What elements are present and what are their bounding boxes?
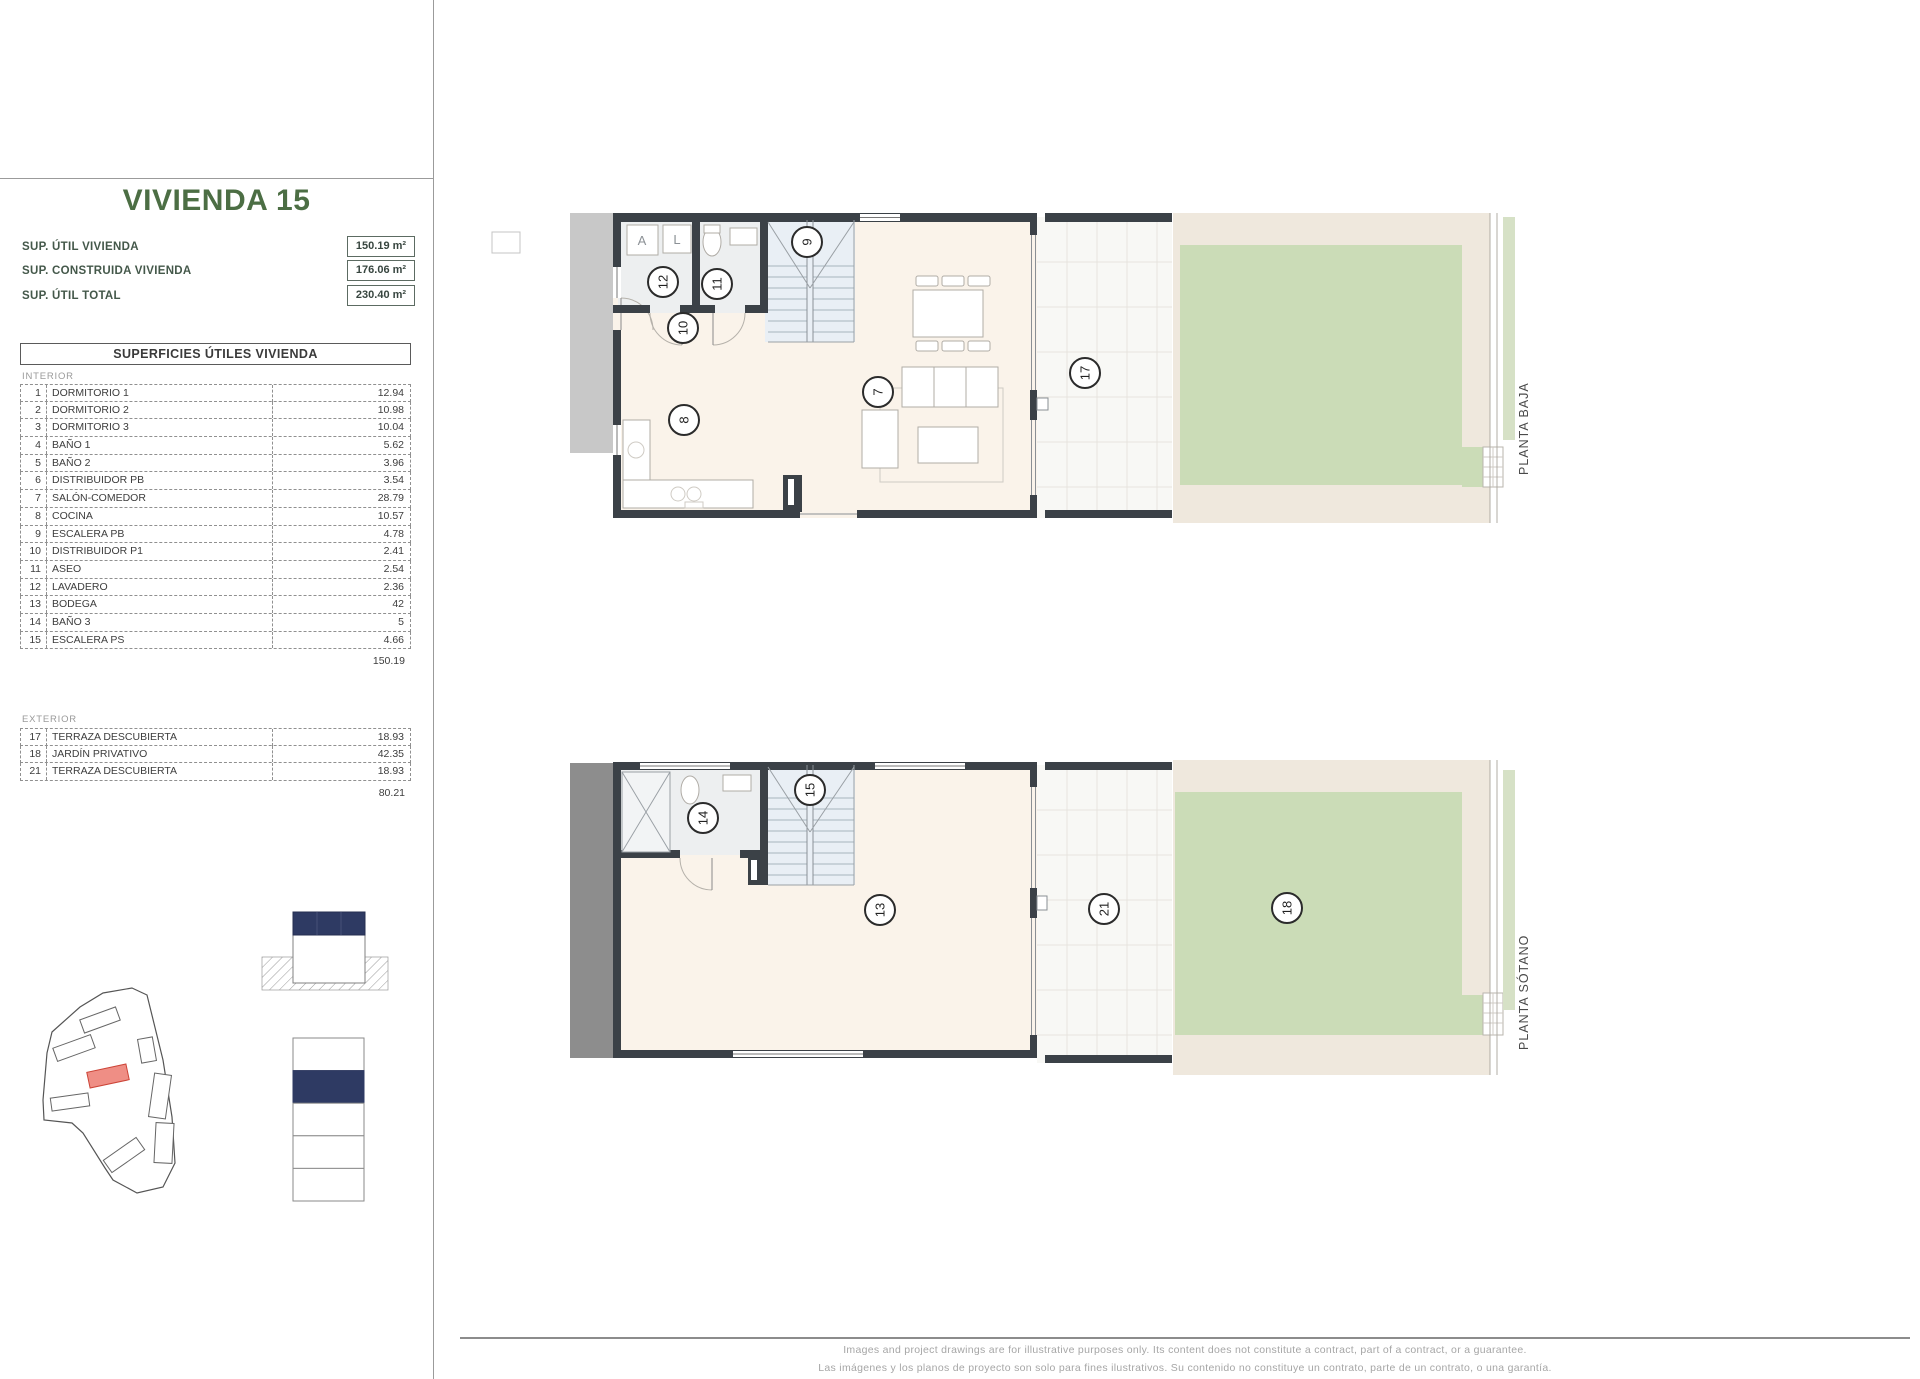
interior-total: 150.19 [20,655,411,667]
row-value: 18.93 [273,763,410,780]
wall-top [613,213,1037,222]
interior-section-label: INTERIOR [22,371,74,382]
floor-level-key [292,1037,366,1202]
row-name: DORMITORIO 1 [47,385,273,402]
level-cell [293,1136,364,1169]
stat-value-util-total: 230.40 m² [347,285,415,306]
row-value: 5.62 [273,437,410,454]
wall-left [613,455,621,518]
table-row: 21TERRAZA DESCUBIERTA18.93 [20,763,411,781]
terrace-wall-bottom [1045,510,1172,518]
table-row: 7SALÓN-COMEDOR28.79 [20,490,411,508]
site-plan-key [25,975,240,1210]
stat-label-util-total: SUP. ÚTIL TOTAL [22,290,322,302]
row-num: 12 [21,579,47,596]
row-num: 10 [21,543,47,560]
room-tag-kitchen: 8 [669,405,699,435]
room-tag-stairs: 15 [795,775,825,805]
row-value: 28.79 [273,490,410,507]
row-name: BAÑO 1 [47,437,273,454]
row-num: 13 [21,596,47,613]
svg-text:15: 15 [803,783,818,797]
row-num: 9 [21,526,47,543]
garden [1175,792,1462,1035]
room-tag-cellar: 13 [865,895,895,925]
footer-disclaimer-es: Las imágenes y los planos de proyecto so… [460,1362,1910,1374]
stat-label-util-vivienda: SUP. ÚTIL VIVIENDA [22,241,322,253]
stat-value-util-vivienda: 150.19 m² [347,236,415,257]
ground-level-box [293,912,365,935]
svg-text:13: 13 [873,903,888,917]
vanity [723,775,751,791]
row-value: 5 [273,614,410,631]
row-value: 2.36 [273,579,410,596]
stat-label-construida: SUP. CONSTRUIDA VIVIENDA [22,265,322,277]
site-building [154,1123,174,1164]
row-value: 2.41 [273,543,410,560]
table-row: 13BODEGA42 [20,596,411,614]
sofa [902,367,998,407]
floor-plan-planta-baja: A L [460,170,1560,535]
wall-stub [783,475,802,512]
table-row: 5BAÑO 23.96 [20,455,411,473]
row-name: BODEGA [47,596,273,613]
row-num: 3 [21,419,47,436]
stat-value-construida: 176.06 m² [347,260,415,281]
garden-gate [1483,447,1503,487]
room-tag-stairs: 9 [792,227,822,257]
section-key-diagram [255,905,395,995]
row-name: SALÓN-COMEDOR [47,490,273,507]
wall-rooms-bottom [613,305,650,313]
room-tag-laundry: 12 [648,267,678,297]
areas-table-header: SUPERFICIES ÚTILES VIVIENDA [20,343,411,365]
row-num: 7 [21,490,47,507]
footer-rule [460,1337,1910,1339]
table-row: 6DISTRIBUIDOR PB3.54 [20,472,411,490]
plan-label-baja: PLANTA BAJA [1517,382,1531,475]
svg-text:8: 8 [677,416,692,423]
neighbor-block [492,232,520,253]
table-row: 18JARDÍN PRIVATIVO42.35 [20,746,411,764]
room-tag-hall: 10 [668,313,698,343]
row-num: 6 [21,472,47,489]
plan-label-sotano: PLANTA SÓTANO [1516,935,1531,1050]
garden-gate [1483,993,1503,1035]
sink [681,776,699,804]
basement-level-box [293,935,365,983]
wall-laundry-bath [692,222,700,313]
retaining-wall-band [570,763,613,1058]
level-cell [293,1038,364,1071]
row-name: DISTRIBUIDOR P1 [47,543,273,560]
row-name: ESCALERA PS [47,632,273,649]
interior-table: 1DORMITORIO 112.94 2DORMITORIO 210.98 3D… [20,384,411,649]
table-row: 14BAÑO 35 [20,614,411,632]
appliance-l-label: L [673,232,680,247]
terrace-wall-top [1045,213,1172,222]
table-row: 1DORMITORIO 112.94 [20,384,411,402]
exterior-section-label: EXTERIOR [22,714,77,725]
row-num: 8 [21,508,47,525]
svg-text:12: 12 [656,275,671,289]
svg-text:17: 17 [1078,366,1093,380]
wall-left [613,762,621,1058]
sidebar-divider [433,0,434,1379]
level-cell-active [293,1071,364,1104]
row-num: 4 [21,437,47,454]
row-name: BAÑO 3 [47,614,273,631]
row-num: 5 [21,455,47,472]
row-name: ASEO [47,561,273,578]
table-row: 15ESCALERA PS4.66 [20,632,411,650]
level-cell [293,1103,364,1136]
dryer-box: L [663,225,691,253]
svg-text:10: 10 [676,321,691,335]
garden-extension [1462,447,1483,487]
footer-disclaimer-en: Images and project drawings are for illu… [460,1344,1910,1356]
row-num: 11 [21,561,47,578]
table-row: 2DORMITORIO 210.98 [20,402,411,420]
row-value: 2.54 [273,561,410,578]
sink [730,228,757,245]
wall-bottom [613,510,800,518]
terrace-wall-bottom [1045,1055,1172,1063]
svg-text:9: 9 [800,238,815,245]
wall-bottom [857,510,1037,518]
wall-left [613,330,621,425]
room-tag-terrace: 17 [1070,358,1100,388]
table-row: 3DORMITORIO 310.04 [20,419,411,437]
row-value: 4.78 [273,526,410,543]
row-value: 42 [273,596,410,613]
row-num: 1 [21,385,47,402]
table-row: 12LAVADERO2.36 [20,579,411,597]
wall-bath-stairs [760,222,768,313]
room-tag-living: 7 [863,377,893,407]
titleblock-topline [0,178,434,179]
row-name: DORMITORIO 3 [47,419,273,436]
row-value: 10.98 [273,402,410,419]
row-num: 15 [21,632,47,649]
garden-extension [1462,995,1483,1035]
shower [622,772,670,852]
row-name: BAÑO 2 [47,455,273,472]
row-num: 17 [21,729,47,746]
svg-text:11: 11 [710,277,725,291]
row-num: 18 [21,746,47,763]
row-value: 3.54 [273,472,410,489]
wall-stub [748,857,763,885]
washer-box: A [627,225,658,255]
page-title: VIVIENDA 15 [0,184,433,218]
garden [1180,245,1462,485]
room-tag-bath: 14 [688,803,718,833]
svg-text:21: 21 [1097,902,1112,916]
svg-text:7: 7 [871,388,886,395]
table-row: 4BAÑO 15.62 [20,437,411,455]
row-value: 3.96 [273,455,410,472]
row-name: ESCALERA PB [47,526,273,543]
wall-rooms-bottom [680,305,715,313]
coffee-table [918,427,978,463]
room-tag-garden: 18 [1272,893,1302,923]
wall-left [613,213,621,267]
table-row: 10DISTRIBUIDOR P12.41 [20,543,411,561]
exterior-table: 17TERRAZA DESCUBIERTA18.93 18JARDÍN PRIV… [20,728,411,781]
row-name: JARDÍN PRIVATIVO [47,746,273,763]
table-row: 8COCINA10.57 [20,508,411,526]
svg-text:18: 18 [1280,901,1295,915]
row-name: TERRAZA DESCUBIERTA [47,729,273,746]
toilet [703,225,721,256]
green-strip [1503,770,1515,1010]
row-num: 14 [21,614,47,631]
level-cell [293,1168,364,1201]
room-tag-terrace: 21 [1089,894,1119,924]
door-handle [1037,398,1048,410]
table-row: 17TERRAZA DESCUBIERTA18.93 [20,728,411,746]
row-value: 42.35 [273,746,410,763]
row-value: 12.94 [273,385,410,402]
floor-plan-planta-sotano: 15 14 13 21 18 PLANTA SÓTANO [460,720,1560,1090]
table-row: 11ASEO2.54 [20,561,411,579]
row-name: DISTRIBUIDOR PB [47,472,273,489]
row-name: LAVADERO [47,579,273,596]
green-strip [1503,217,1515,440]
room-tag-bath: 11 [702,269,732,299]
row-value: 18.93 [273,729,410,746]
row-value: 10.57 [273,508,410,525]
row-name: DORMITORIO 2 [47,402,273,419]
terrace-wall-top [1045,762,1172,770]
table-row: 9ESCALERA PB4.78 [20,526,411,544]
row-name: COCINA [47,508,273,525]
wall-rooms-bottom [745,305,768,313]
svg-text:14: 14 [696,811,711,825]
plan-sheet: VIVIENDA 15 SUP. ÚTIL VIVIENDA SUP. CONS… [0,0,1920,1379]
row-value: 10.04 [273,419,410,436]
row-num: 2 [21,402,47,419]
party-wall-band [570,213,613,453]
door-handle [1037,896,1047,910]
armchair [862,410,898,468]
row-name: TERRAZA DESCUBIERTA [47,763,273,780]
appliance-a-label: A [638,233,647,248]
exterior-total: 80.21 [20,787,411,799]
row-num: 21 [21,763,47,780]
row-value: 4.66 [273,632,410,649]
